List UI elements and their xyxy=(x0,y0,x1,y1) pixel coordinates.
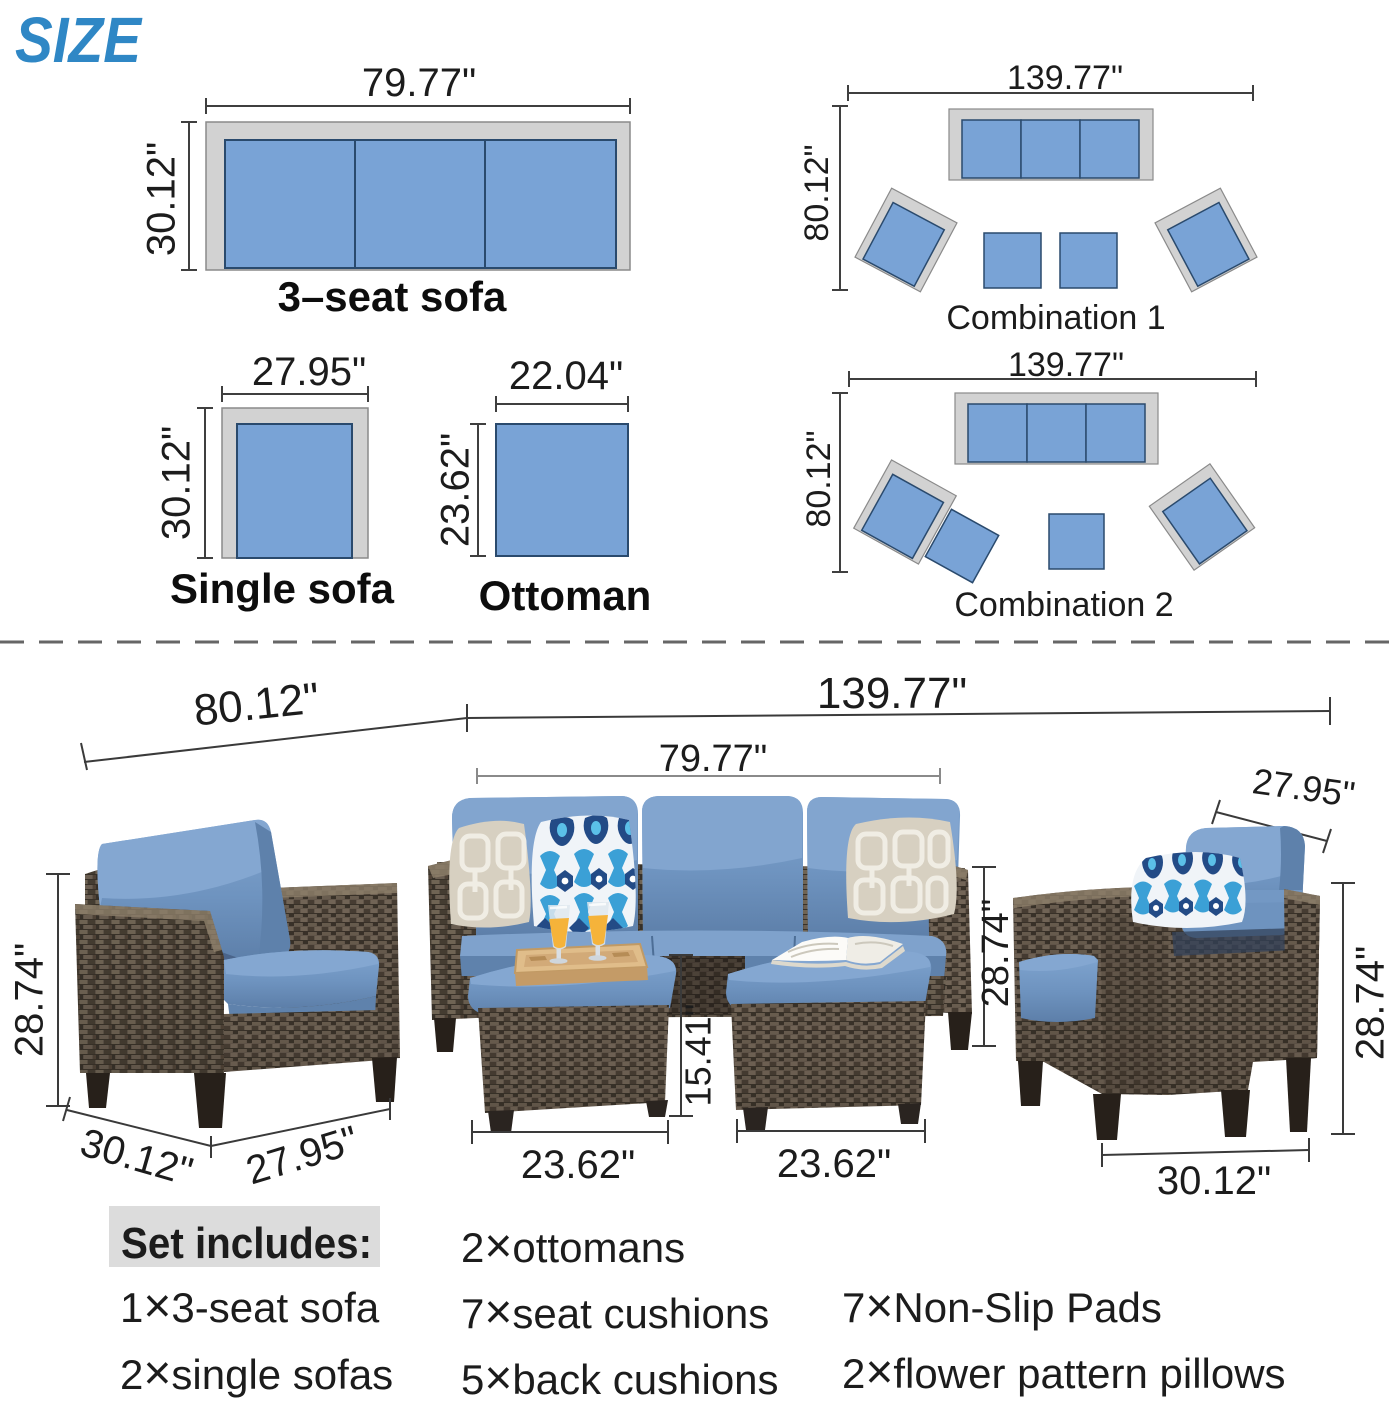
svg-text:3–seat sofa: 3–seat sofa xyxy=(278,273,507,320)
svg-text:30.12": 30.12" xyxy=(140,142,184,256)
svg-text:80.12": 80.12" xyxy=(800,430,838,527)
svg-text:80.12": 80.12" xyxy=(798,144,836,241)
svg-text:7×Non-Slip Pads: 7×Non-Slip Pads xyxy=(842,1280,1162,1333)
svg-text:SIZE: SIZE xyxy=(15,4,143,76)
svg-text:28.74": 28.74" xyxy=(1349,946,1393,1060)
svg-text:30.12": 30.12" xyxy=(155,426,199,540)
svg-text:Single sofa: Single sofa xyxy=(170,565,395,612)
svg-text:139.77": 139.77" xyxy=(1008,346,1124,384)
svg-text:27.95": 27.95" xyxy=(252,350,366,394)
svg-text:7×seat cushions: 7×seat cushions xyxy=(461,1286,769,1339)
svg-text:28.74": 28.74" xyxy=(975,899,1017,1008)
svg-text:Ottoman: Ottoman xyxy=(479,572,652,619)
svg-text:2×ottomans: 2×ottomans xyxy=(461,1220,685,1273)
svg-text:79.77": 79.77" xyxy=(362,61,476,105)
svg-text:Combination 2: Combination 2 xyxy=(954,586,1173,624)
svg-text:28.74": 28.74" xyxy=(8,943,52,1057)
svg-text:79.77": 79.77" xyxy=(659,738,768,780)
svg-text:15.41": 15.41" xyxy=(678,1004,719,1107)
svg-text:23.62": 23.62" xyxy=(777,1142,891,1186)
svg-text:22.04": 22.04" xyxy=(509,354,623,398)
svg-text:Set includes:: Set includes: xyxy=(121,1219,372,1268)
svg-text:139.77": 139.77" xyxy=(817,669,967,718)
svg-text:30.12": 30.12" xyxy=(1157,1159,1271,1203)
svg-text:Combination 1: Combination 1 xyxy=(946,299,1165,337)
svg-text:2×flower pattern pillows: 2×flower pattern pillows xyxy=(842,1346,1286,1399)
svg-text:23.62": 23.62" xyxy=(521,1143,635,1187)
svg-text:5×back cushions: 5×back cushions xyxy=(461,1352,779,1400)
svg-text:1×3-seat sofa: 1×3-seat sofa xyxy=(120,1280,380,1333)
svg-text:139.77": 139.77" xyxy=(1007,59,1123,97)
svg-text:23.62": 23.62" xyxy=(434,433,478,547)
svg-text:2×single sofas: 2×single sofas xyxy=(120,1347,393,1400)
